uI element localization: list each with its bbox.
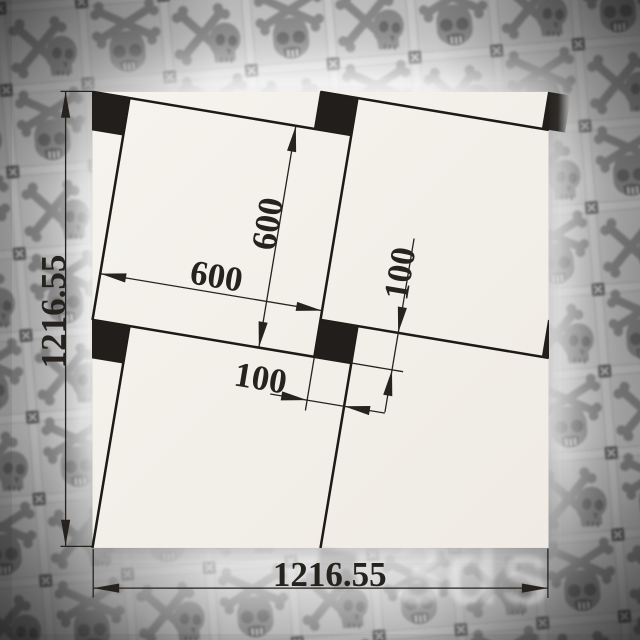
- svg-text:1216.55: 1216.55: [34, 255, 73, 369]
- svg-text:1216.55: 1216.55: [273, 555, 387, 594]
